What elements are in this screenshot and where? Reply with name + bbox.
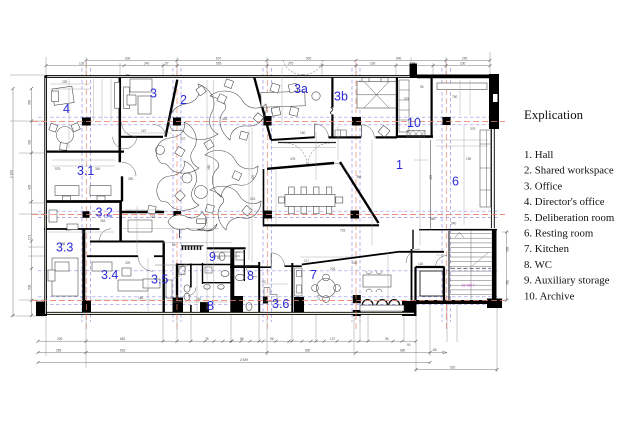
svg-text:230: 230 <box>460 62 466 66</box>
svg-text:3.4: 3.4 <box>101 268 118 282</box>
svg-text:96: 96 <box>172 243 176 247</box>
svg-text:5. Deliberation room: 5. Deliberation room <box>524 212 615 224</box>
svg-text:400: 400 <box>28 139 32 145</box>
svg-text:520: 520 <box>450 365 456 369</box>
svg-text:117: 117 <box>304 259 309 263</box>
svg-text:380: 380 <box>506 279 510 285</box>
svg-text:240: 240 <box>144 62 150 66</box>
svg-text:290: 290 <box>462 56 468 60</box>
svg-text:118: 118 <box>79 62 84 66</box>
svg-text:8. WC: 8. WC <box>524 259 552 271</box>
svg-text:428: 428 <box>28 184 32 190</box>
svg-text:165: 165 <box>138 296 144 300</box>
svg-text:230: 230 <box>370 62 376 66</box>
svg-text:137: 137 <box>330 337 336 341</box>
svg-text:253: 253 <box>150 215 156 219</box>
svg-text:460: 460 <box>207 164 211 170</box>
svg-text:750: 750 <box>452 95 458 99</box>
svg-text:96: 96 <box>385 337 389 341</box>
svg-text:6: 6 <box>452 175 459 189</box>
svg-text:96: 96 <box>420 85 424 89</box>
svg-text:3b: 3b <box>334 89 348 103</box>
svg-text:478: 478 <box>290 157 296 161</box>
svg-text:263: 263 <box>100 219 106 223</box>
svg-text:9. Auxiliary storage: 9. Auxiliary storage <box>524 275 610 287</box>
svg-text:209: 209 <box>57 337 63 341</box>
svg-text:680: 680 <box>305 349 311 353</box>
svg-text:90: 90 <box>407 343 411 347</box>
svg-text:171: 171 <box>28 234 32 240</box>
svg-text:366: 366 <box>356 175 362 179</box>
svg-text:603: 603 <box>120 349 126 353</box>
svg-text:2: 2 <box>180 93 187 107</box>
svg-text:460: 460 <box>430 217 436 221</box>
svg-text:3. Office: 3. Office <box>524 180 562 192</box>
svg-text:508: 508 <box>28 284 32 290</box>
svg-text:180: 180 <box>300 131 306 135</box>
svg-text:8: 8 <box>207 299 214 313</box>
svg-text:300: 300 <box>28 99 32 105</box>
svg-text:568: 568 <box>506 246 510 252</box>
svg-text:230: 230 <box>62 80 68 84</box>
svg-text:4. Director's office: 4. Director's office <box>524 196 605 208</box>
svg-text:4: 4 <box>63 102 70 116</box>
svg-text:10. Archive: 10. Archive <box>524 290 575 302</box>
svg-text:753: 753 <box>340 229 346 233</box>
svg-text:455: 455 <box>429 174 433 180</box>
svg-text:7: 7 <box>310 268 317 282</box>
svg-text:600: 600 <box>396 56 402 60</box>
svg-text:445: 445 <box>222 117 228 121</box>
svg-text:57: 57 <box>165 62 169 66</box>
svg-text:75: 75 <box>205 337 209 341</box>
svg-text:250: 250 <box>128 177 134 181</box>
svg-text:3.3: 3.3 <box>56 241 73 255</box>
svg-text:300: 300 <box>95 167 101 171</box>
svg-text:540: 540 <box>451 222 457 226</box>
svg-text:10: 10 <box>407 116 421 130</box>
svg-text:Explication: Explication <box>524 108 584 122</box>
svg-text:607: 607 <box>216 56 222 60</box>
svg-text:375: 375 <box>404 97 410 101</box>
svg-text:579: 579 <box>55 167 61 171</box>
svg-text:243: 243 <box>250 197 256 201</box>
svg-text:8: 8 <box>247 269 254 283</box>
svg-text:680: 680 <box>400 349 406 353</box>
svg-text:420: 420 <box>251 174 255 180</box>
svg-text:505: 505 <box>216 62 222 66</box>
svg-text:375: 375 <box>288 62 294 66</box>
svg-text:90: 90 <box>262 280 266 284</box>
svg-text:1: 1 <box>396 158 403 172</box>
svg-text:3a: 3a <box>294 82 308 96</box>
svg-text:-86: -86 <box>432 348 437 352</box>
svg-text:229: 229 <box>125 261 131 265</box>
svg-text:3.1: 3.1 <box>77 164 94 178</box>
svg-text:118: 118 <box>418 262 423 266</box>
svg-text:3.6: 3.6 <box>272 297 289 311</box>
svg-text:167: 167 <box>141 129 147 133</box>
svg-text:600: 600 <box>125 56 131 60</box>
svg-text:3.2: 3.2 <box>96 206 113 220</box>
svg-text:379: 379 <box>470 127 476 131</box>
svg-text:3: 3 <box>150 86 157 100</box>
svg-text:16 780 T: 16 780 T <box>462 284 475 288</box>
svg-text:2. Shared workspace: 2. Shared workspace <box>524 165 614 177</box>
svg-text:150: 150 <box>352 261 358 265</box>
svg-text:307: 307 <box>180 137 186 141</box>
svg-text:190: 190 <box>466 157 472 161</box>
svg-text:3.5: 3.5 <box>151 273 168 287</box>
svg-text:1. Hall: 1. Hall <box>524 149 553 161</box>
svg-text:203: 203 <box>330 267 336 271</box>
svg-text:1 100: 1 100 <box>10 170 14 178</box>
svg-text:682: 682 <box>120 337 126 341</box>
svg-text:7. Kitchen: 7. Kitchen <box>524 243 570 255</box>
svg-text:2 549: 2 549 <box>240 358 248 362</box>
svg-text:600: 600 <box>306 56 312 60</box>
svg-text:9: 9 <box>209 250 216 264</box>
svg-text:173: 173 <box>317 294 321 300</box>
svg-text:88: 88 <box>240 337 244 341</box>
svg-text:259: 259 <box>56 349 62 353</box>
svg-text:96: 96 <box>270 337 274 341</box>
svg-text:6. Resting room: 6. Resting room <box>524 228 594 240</box>
